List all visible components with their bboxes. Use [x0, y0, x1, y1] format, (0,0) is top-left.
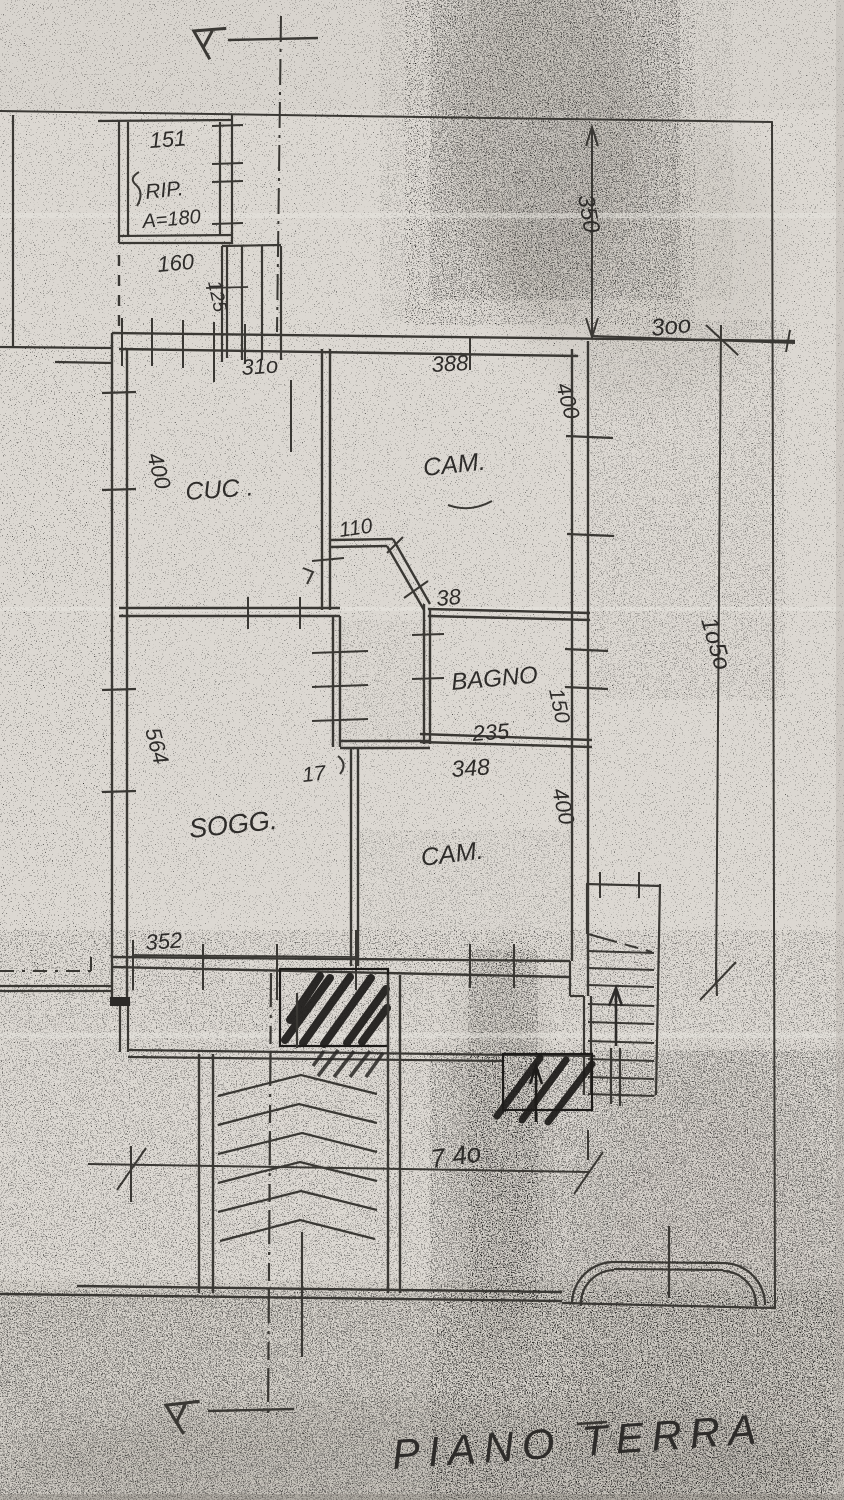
- svg-text:3oo: 3oo: [650, 311, 693, 342]
- svg-text:31o: 31o: [241, 352, 279, 380]
- svg-text:160: 160: [156, 249, 196, 277]
- svg-text:RIP.: RIP.: [144, 177, 184, 204]
- svg-text:38: 38: [435, 584, 462, 611]
- svg-text:348: 348: [451, 753, 491, 782]
- svg-text:235: 235: [471, 718, 511, 746]
- svg-text:110: 110: [337, 514, 374, 541]
- svg-text:352: 352: [145, 927, 183, 955]
- svg-text:17: 17: [301, 762, 328, 787]
- svg-text:151: 151: [149, 125, 187, 153]
- svg-text:CUC .: CUC .: [184, 473, 254, 506]
- svg-text:388: 388: [431, 350, 470, 377]
